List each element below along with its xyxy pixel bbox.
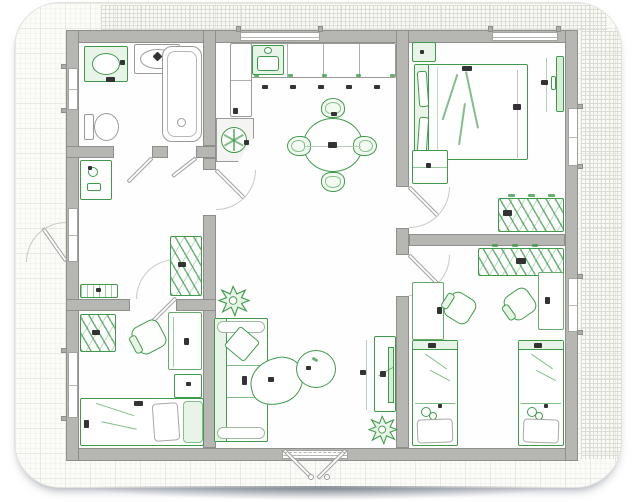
blanket-fold <box>425 354 447 370</box>
hall-wardrobe-icon <box>170 236 202 296</box>
dimension-label <box>84 420 89 428</box>
pillow <box>417 418 454 443</box>
door-arc-side-entry <box>26 222 66 262</box>
wardrobe-tick <box>528 194 535 197</box>
wardrobe-tick <box>532 244 538 247</box>
screenshot-root <box>0 0 637 502</box>
wall-hall-bed1-b <box>176 299 216 311</box>
window-cap <box>488 26 493 32</box>
sofa-armrest <box>217 427 265 439</box>
dimension-label <box>242 376 247 385</box>
wall-bathroom-right <box>203 30 216 146</box>
dimension-label <box>516 258 526 264</box>
toilet-tank <box>84 114 94 140</box>
dimension-label <box>380 371 386 377</box>
window-cap <box>577 330 583 335</box>
cabinet-divider <box>287 44 288 77</box>
floor-plan <box>0 0 637 502</box>
window-cap <box>577 274 583 279</box>
window-cap <box>577 164 583 169</box>
dimension-label <box>233 108 238 114</box>
wall-bath-bottom-a <box>66 146 114 158</box>
cabinet-divider <box>323 44 324 77</box>
window-kids-right <box>568 278 578 332</box>
window-cap <box>556 26 561 32</box>
bed-divider <box>415 403 455 404</box>
dimension-label <box>88 166 92 170</box>
double-bed-icon <box>414 64 528 160</box>
desk-edge <box>173 317 174 367</box>
counter-tick <box>322 74 327 77</box>
single-bed-kids-icon <box>412 340 458 446</box>
dimension-label <box>360 370 366 375</box>
dimension-label <box>541 80 548 85</box>
wall-bath-bottom-c <box>196 146 216 158</box>
dimension-label <box>96 288 101 292</box>
window-master <box>492 32 558 41</box>
wardrobe-tick <box>492 244 498 247</box>
tv-bracket <box>551 76 556 90</box>
hall-console-icon <box>80 160 112 200</box>
window-cap <box>61 108 67 113</box>
counter-tick <box>254 74 259 77</box>
window-cap <box>61 416 67 421</box>
dimension-label <box>462 66 472 71</box>
wardrobe-tick <box>508 194 515 197</box>
dimension-label <box>134 401 143 406</box>
dimension-label <box>184 338 189 345</box>
dimension-label <box>346 85 352 89</box>
kitchen-sink-icon <box>252 45 284 75</box>
bed-divider <box>521 403 561 404</box>
cabinet-divider <box>231 80 251 81</box>
tv-screen <box>388 347 394 403</box>
card-shadow <box>88 486 550 500</box>
blanket-fold <box>442 74 458 120</box>
washer-drum <box>92 53 120 75</box>
window-bedroom-left <box>68 352 78 418</box>
dimension-label <box>306 366 311 370</box>
wall-mid-b <box>396 228 409 255</box>
washer-knob <box>120 60 125 65</box>
counter-tick <box>356 74 361 77</box>
blanket-fold <box>465 71 479 128</box>
dimension-label <box>534 343 542 348</box>
dresser-knob <box>426 163 431 168</box>
dimension-label <box>268 377 274 382</box>
dimension-line <box>546 58 547 112</box>
coffee-table-round-icon <box>296 350 336 388</box>
blanket-fold <box>536 370 556 381</box>
entry-door-tip <box>324 474 330 480</box>
dimension-label <box>331 112 337 116</box>
folded-blanket <box>183 401 203 443</box>
decor-item <box>87 183 101 191</box>
bathtub-icon <box>162 46 202 142</box>
blanket-fold <box>101 421 136 430</box>
dimension-label <box>178 262 186 267</box>
sink-faucet <box>264 47 272 54</box>
kitchen-counter-left <box>230 43 252 117</box>
dimension-label <box>544 404 548 408</box>
dimension-label <box>186 382 191 386</box>
entry-door-tip <box>308 474 314 480</box>
wardrobe-tick <box>548 194 555 197</box>
wall-hall-bed1-a <box>66 299 130 311</box>
dimension-label <box>503 210 512 216</box>
dimension-label <box>428 343 436 348</box>
dimension-label <box>328 142 337 148</box>
wall-hall-stub <box>203 158 216 170</box>
desk-kids-right-icon <box>538 272 564 330</box>
blanket-fold <box>531 354 553 370</box>
single-bed-kids-icon <box>518 340 564 446</box>
window-master-right <box>568 108 578 166</box>
entry-threshold <box>284 452 346 453</box>
dimension-label <box>545 297 550 304</box>
dimension-label <box>92 330 100 335</box>
window-kitchen <box>240 32 320 41</box>
dimension-label <box>374 85 380 89</box>
window-cap <box>61 64 67 69</box>
window-cap <box>236 26 241 32</box>
drawer-unit-icon <box>174 374 202 398</box>
window-cap <box>577 104 583 109</box>
counter-tick <box>288 74 293 77</box>
sofa-back <box>215 319 227 441</box>
window-cap <box>318 26 323 32</box>
dimension-label <box>513 104 521 110</box>
cabinet-divider <box>359 44 360 77</box>
sink-basin <box>257 56 279 71</box>
potted-plant-icon <box>368 414 398 446</box>
blanket-fold <box>430 370 450 381</box>
toilet-bowl-icon <box>94 113 119 141</box>
wall-right <box>565 30 578 461</box>
pillow <box>523 418 560 443</box>
dimension-label <box>438 404 442 408</box>
pillow <box>152 402 181 442</box>
potted-plant-icon <box>218 284 250 318</box>
dimension-line <box>517 70 518 158</box>
wardrobe-tick <box>512 244 518 247</box>
side-entry-opening <box>68 208 78 262</box>
dimension-label <box>262 85 268 89</box>
window-cap <box>61 348 67 353</box>
dimension-label <box>244 140 249 145</box>
wall-mid-a <box>396 30 409 187</box>
dimension-line <box>366 340 367 410</box>
counter-tick <box>390 74 395 77</box>
wall-bath-bottom-b <box>152 146 168 158</box>
window-bathroom <box>68 68 78 110</box>
sheet-line <box>437 67 438 157</box>
nightstand-icon <box>412 42 436 62</box>
blanket-fold <box>96 403 134 416</box>
nightstand-knob <box>420 50 424 54</box>
dimension-label <box>290 85 296 89</box>
blanket-fold <box>458 103 465 145</box>
dining-chair-bottom <box>321 172 345 192</box>
bathtub-drain <box>177 118 186 127</box>
dimension-label <box>318 85 324 89</box>
dimension-label <box>106 77 115 82</box>
dimension-label <box>437 307 442 314</box>
wall-bedrooms-divider <box>409 234 565 246</box>
wall-tv-icon <box>556 56 564 112</box>
